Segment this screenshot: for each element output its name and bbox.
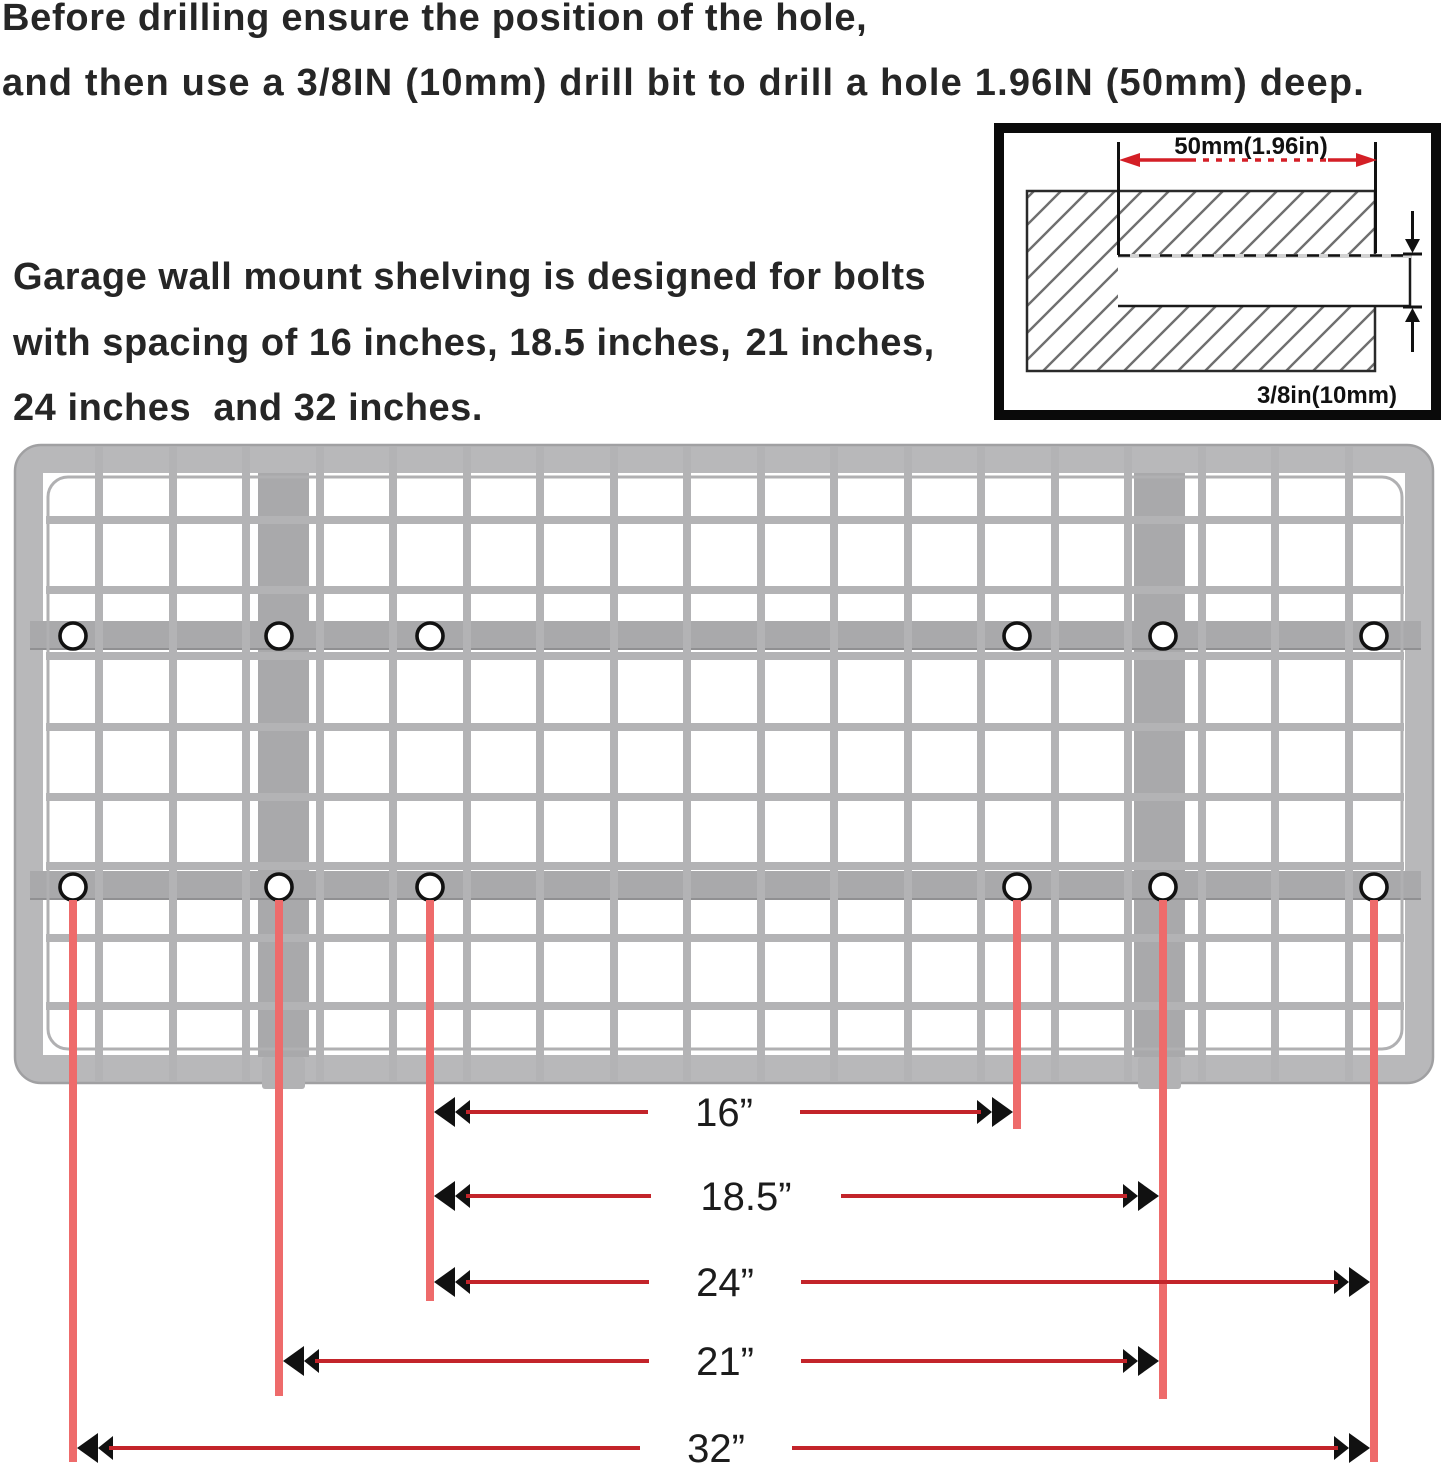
svg-text:32”: 32” [687, 1427, 745, 1471]
svg-text:50mm(1.96in): 50mm(1.96in) [1174, 133, 1327, 160]
svg-text:21”: 21” [696, 1340, 754, 1384]
svg-text:24”: 24” [696, 1261, 754, 1305]
svg-text:16”: 16” [695, 1091, 753, 1135]
svg-text:18.5”: 18.5” [700, 1175, 791, 1219]
svg-text:3/8in(10mm): 3/8in(10mm) [1257, 382, 1397, 409]
